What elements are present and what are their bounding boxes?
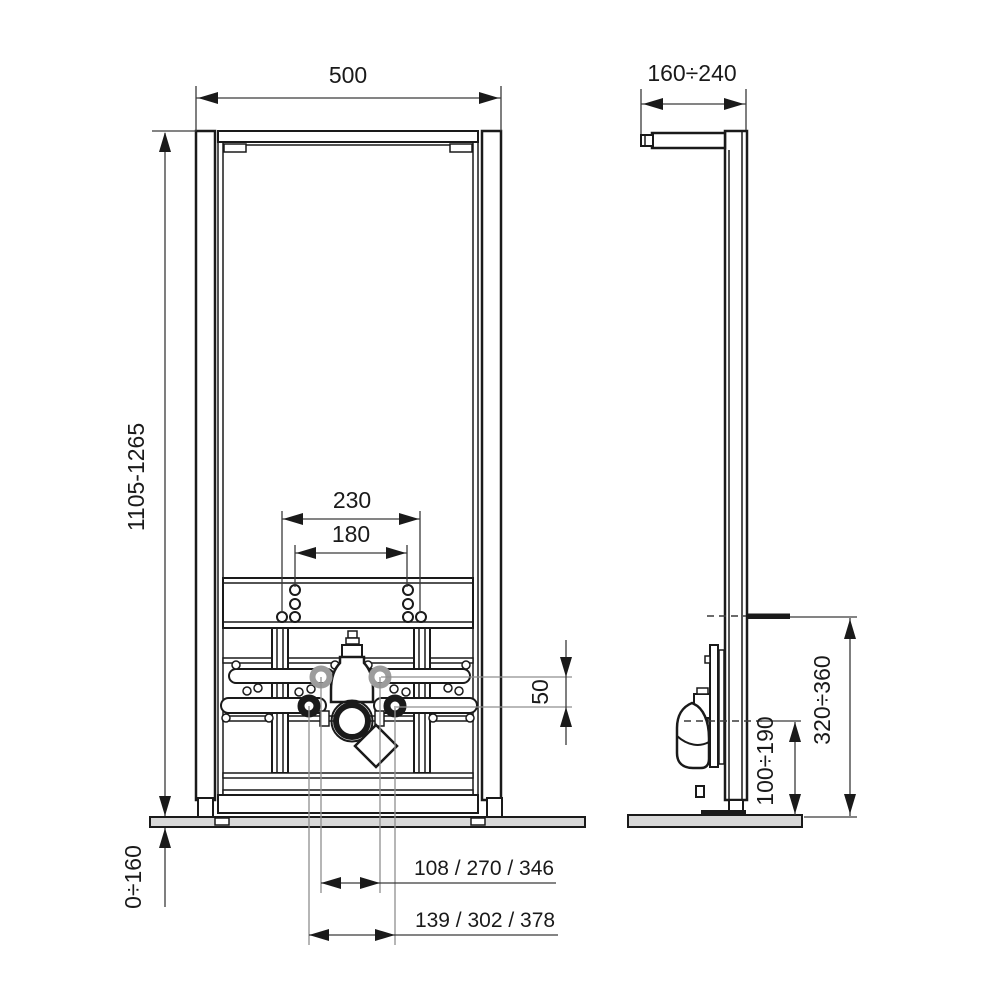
dim-frame-width: 500	[196, 62, 501, 131]
dim-label-stud-height: 320÷360	[809, 655, 835, 744]
hole	[254, 684, 262, 692]
arrow-up	[159, 132, 171, 152]
dim-wall-depth: 160÷240	[641, 60, 746, 134]
side-arm-endcap	[641, 135, 653, 146]
foot-notch-left	[215, 818, 229, 825]
bolt-hole	[277, 612, 287, 622]
mounting-stud	[747, 614, 790, 620]
side-drain-elbow	[677, 703, 709, 768]
hole	[466, 714, 474, 722]
arrow-left	[309, 929, 329, 941]
hole	[455, 687, 463, 695]
front-bottom-crossbar	[218, 773, 478, 813]
dim-label-drain-height: 100÷190	[752, 716, 778, 805]
bolt-hole	[290, 612, 300, 622]
bottom-rail	[218, 795, 478, 813]
arrow-down	[844, 794, 856, 814]
side-plate-inner	[719, 650, 724, 764]
top-bar	[218, 131, 478, 142]
dim-floor-adjust: 0÷160	[120, 828, 171, 909]
bolt-hole	[403, 612, 413, 622]
side-foot	[729, 800, 743, 811]
dim-label-frame-height: 1105-1265	[123, 423, 149, 531]
dim-label-floor-adjust: 0÷160	[120, 845, 146, 909]
arrow-right	[399, 513, 419, 525]
arrow-left	[643, 98, 663, 110]
side-plate-tab	[705, 656, 710, 663]
arrow-up	[844, 619, 856, 639]
dim-stud-height: 320÷360	[790, 617, 857, 817]
dim-label-outer-spacing-options: 139 / 302 / 378	[415, 909, 555, 932]
dim-label-frame-width: 500	[329, 62, 367, 88]
arrow-up	[159, 828, 171, 848]
front-left-post	[196, 131, 215, 800]
dim-connection-offset: 50	[527, 640, 572, 745]
dim-drain-height: 100÷190	[752, 716, 801, 815]
hole	[232, 661, 240, 669]
bolt-hole	[416, 612, 426, 622]
arrow-right	[386, 547, 406, 559]
side-valve-step-top	[697, 688, 708, 694]
bolt-hole	[403, 599, 413, 609]
dim-outer-spacing-options: 139 / 302 / 378	[309, 909, 558, 941]
front-upper-crossbar	[223, 578, 473, 628]
hole	[265, 714, 273, 722]
arrow-left	[283, 513, 303, 525]
hole	[295, 688, 303, 696]
hole	[307, 685, 315, 693]
floor-plate-side	[628, 815, 802, 827]
arrow-right	[375, 929, 395, 941]
dim-label-wall-depth: 160÷240	[647, 60, 736, 86]
dim-label-connection-offset: 50	[527, 679, 553, 705]
top-notch-right	[450, 144, 472, 152]
hole	[222, 714, 230, 722]
dim-label-hole-spacing-outer: 230	[333, 487, 371, 513]
crossbar-body	[223, 578, 473, 628]
front-right-post	[482, 131, 501, 800]
hole	[243, 687, 251, 695]
arrow-up	[789, 722, 801, 742]
foot-notch-right	[471, 818, 485, 825]
front-right-foot	[487, 798, 502, 817]
drain-bolt-top	[348, 631, 357, 638]
arrow-right	[360, 877, 380, 889]
arrow-left	[296, 547, 316, 559]
arrow-right	[479, 92, 499, 104]
bolt-hole	[290, 599, 300, 609]
hole	[390, 685, 398, 693]
arrow-left	[321, 877, 341, 889]
hole	[462, 661, 470, 669]
hole	[444, 684, 452, 692]
dim-label-inner-spacing-options: 108 / 270 / 346	[414, 857, 554, 880]
front-left-foot	[198, 798, 213, 817]
arrow-right	[724, 98, 744, 110]
hole	[429, 714, 437, 722]
dim-inner-spacing-options: 108 / 270 / 346	[321, 857, 556, 889]
side-mounting-plate	[710, 645, 718, 767]
dim-frame-height: 1105-1265	[123, 131, 196, 816]
front-top-bar	[218, 131, 478, 152]
top-notch-left	[224, 144, 246, 152]
drain-pipe-ring	[336, 705, 368, 737]
arrow-down	[159, 796, 171, 816]
technical-drawing-page: 500 160÷240 1105-1265 0÷160	[0, 0, 1000, 1000]
installation-frame-diagram: 500 160÷240 1105-1265 0÷160	[0, 0, 1000, 1000]
bottom-band-1	[223, 773, 473, 778]
hole	[402, 688, 410, 696]
arrow-left	[198, 92, 218, 104]
drain-bolt-nut	[342, 645, 362, 657]
arrow-down	[789, 794, 801, 814]
drain-bolt-mid	[346, 638, 359, 644]
bolt-hole	[403, 585, 413, 595]
side-bottom-clip	[696, 786, 704, 797]
arrow-up	[560, 707, 572, 727]
dim-label-hole-spacing-inner: 180	[332, 521, 370, 547]
arrow-down	[560, 657, 572, 677]
side-wall-arm	[652, 133, 725, 148]
front-view	[150, 131, 585, 827]
